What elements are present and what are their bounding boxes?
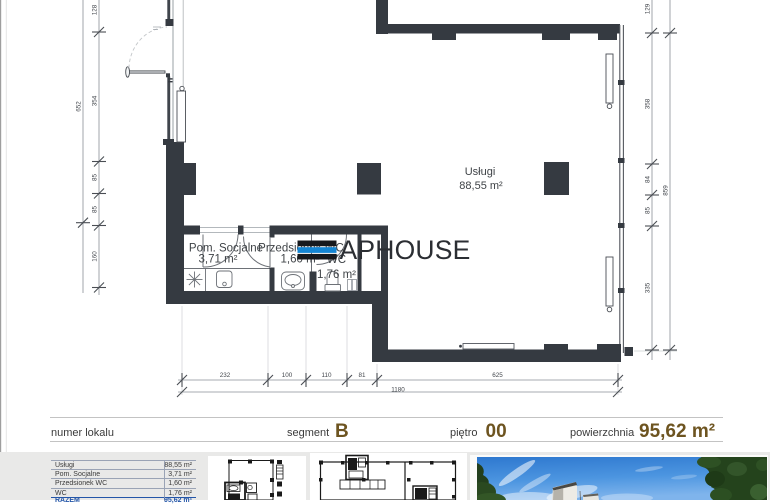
svg-text:1180: 1180 xyxy=(391,387,405,394)
svg-text:160: 160 xyxy=(92,251,99,262)
svg-text:100: 100 xyxy=(282,372,293,379)
svg-text:85: 85 xyxy=(645,207,652,215)
svg-text:81: 81 xyxy=(358,372,366,379)
svg-text:128: 128 xyxy=(92,4,99,15)
svg-text:APHOUSE: APHOUSE xyxy=(340,235,471,265)
svg-text:110: 110 xyxy=(321,372,332,379)
svg-text:Usługi: Usługi xyxy=(465,166,496,178)
svg-text:129: 129 xyxy=(645,3,652,14)
svg-text:1,76 m²: 1,76 m² xyxy=(317,269,356,281)
svg-text:652: 652 xyxy=(76,101,83,112)
svg-text:232: 232 xyxy=(220,372,231,379)
svg-text:358: 358 xyxy=(645,98,652,109)
svg-text:354: 354 xyxy=(92,95,99,106)
svg-text:859: 859 xyxy=(663,185,670,196)
svg-text:85: 85 xyxy=(92,206,99,214)
svg-text:88,55 m²: 88,55 m² xyxy=(459,180,503,192)
svg-text:85: 85 xyxy=(92,174,99,182)
svg-text:625: 625 xyxy=(492,372,503,379)
svg-text:3,71 m²: 3,71 m² xyxy=(199,254,238,266)
svg-text:335: 335 xyxy=(645,282,652,293)
svg-text:84: 84 xyxy=(645,176,652,184)
